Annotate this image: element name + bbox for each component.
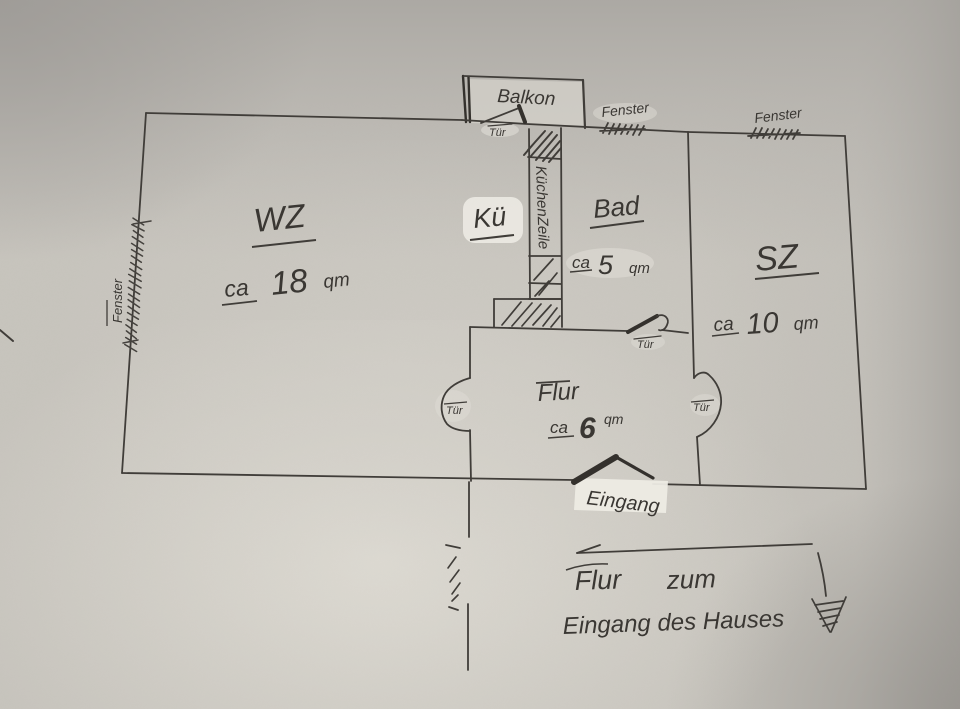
svg-text:ca: ca (223, 274, 249, 302)
svg-text:KüchenZeile: KüchenZeile (532, 166, 552, 250)
svg-text:qm: qm (629, 260, 650, 277)
svg-text:qm: qm (604, 411, 624, 427)
svg-text:5: 5 (598, 250, 614, 280)
svg-text:qm: qm (322, 269, 350, 293)
svg-text:Balkon: Balkon (497, 86, 556, 110)
svg-text:Kü: Kü (472, 201, 508, 234)
svg-text:Flur: Flur (574, 564, 623, 596)
svg-text:ca: ca (550, 418, 568, 437)
svg-text:Tür: Tür (637, 339, 655, 351)
svg-text:Tür: Tür (489, 127, 507, 139)
svg-text:zum: zum (665, 563, 716, 595)
svg-text:6: 6 (579, 412, 596, 445)
svg-text:Fenster: Fenster (110, 278, 125, 323)
svg-text:Tür: Tür (693, 402, 711, 414)
svg-text:10: 10 (745, 307, 779, 341)
svg-text:ca: ca (713, 314, 734, 336)
svg-text:qm: qm (793, 312, 819, 334)
svg-text:ca: ca (572, 253, 590, 272)
svg-text:Tür: Tür (446, 405, 464, 417)
svg-text:SZ: SZ (753, 237, 801, 279)
svg-text:WZ: WZ (252, 197, 309, 239)
svg-text:Bad: Bad (592, 190, 642, 224)
svg-text:18: 18 (269, 261, 310, 302)
